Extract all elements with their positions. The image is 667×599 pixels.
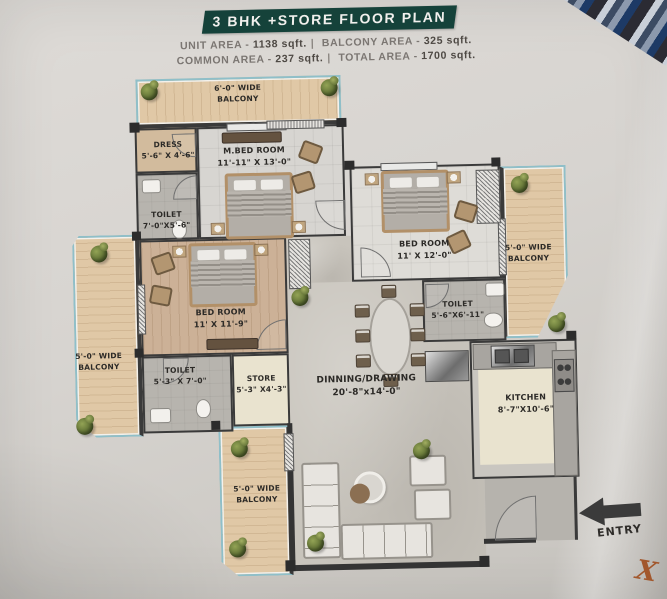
sink-bowl	[495, 349, 510, 363]
dining-chair	[355, 304, 370, 317]
kitchen-sink-unit	[491, 345, 535, 368]
label-balcony-top: 6'-0" WIDEBALCONY	[193, 82, 283, 106]
label-balcony-right: 5'-0" WIDEBALCONY	[488, 242, 568, 266]
pillow	[223, 248, 247, 261]
sofa-single	[414, 489, 452, 521]
sliding-door	[283, 433, 294, 471]
floor-plan: 6'-0" WIDEBALCONY DRESS5'-6" X 4'-6" M.B…	[60, 66, 623, 580]
dining-chair	[411, 353, 426, 366]
bedside-lamp	[172, 246, 186, 258]
washbasin	[485, 282, 504, 296]
wall-pillar	[285, 560, 295, 571]
wall-pillar	[344, 161, 354, 170]
dining-chair	[355, 329, 370, 342]
wall-pillar	[336, 118, 346, 127]
wall-pillar	[135, 349, 144, 358]
total-area-value: 1700 sqft.	[421, 49, 476, 62]
wall-pillar	[566, 331, 576, 340]
bedside-lamp	[365, 173, 379, 185]
arrow-bar	[601, 502, 641, 518]
label-bedroom-right: BED ROOM11' X 12'-0"	[374, 237, 475, 262]
washbasin	[150, 408, 171, 423]
blanket	[227, 190, 292, 217]
arrow-head	[578, 498, 605, 528]
pillow	[233, 179, 257, 192]
label-dining: DINNING/DRAWING20'-8"x14'-0"	[305, 372, 428, 401]
balcony-area-label: BALCONY AREA -	[318, 35, 424, 49]
wall-pillar	[129, 123, 139, 133]
pillow	[389, 176, 413, 189]
title-banner: 3 BHK +STORE FLOOR PLAN	[202, 5, 457, 33]
label-toilet-right: TOILET5'-6"X6'-11"	[418, 298, 498, 322]
wall-pillar	[479, 556, 489, 567]
page-title: 3 BHK +STORE FLOOR PLAN	[203, 5, 456, 33]
label-master-bedroom: M.BED ROOM11'-11" X 13'-0"	[204, 144, 305, 169]
kitchen-floor	[478, 368, 554, 465]
room-balcony-left	[72, 235, 144, 438]
label-store: STORE5'-3" X4'-3"	[221, 373, 301, 397]
dining-chair	[356, 354, 371, 367]
balcony-area-value: 325 sqft.	[424, 34, 472, 47]
dresser	[222, 131, 282, 143]
unit-area-label: UNIT AREA -	[180, 39, 253, 53]
sliding-door	[266, 119, 324, 129]
bed-right	[381, 170, 450, 234]
sink-bowl	[514, 349, 529, 363]
pillow	[416, 176, 440, 189]
unit-area-value: 1138 sqft.	[253, 38, 307, 51]
bedside-lamp	[211, 223, 225, 235]
label-balcony-bottom: 5'-0" WIDEBALCONY	[217, 483, 297, 507]
wardrobe	[476, 169, 501, 224]
separator: |	[307, 37, 319, 49]
bedside-lamp	[292, 221, 306, 233]
blanket	[191, 260, 256, 287]
common-area-label: COMMON AREA -	[177, 53, 276, 67]
common-area-value: 237 sqft.	[275, 52, 323, 65]
armchair	[149, 284, 173, 307]
toilet-seat	[196, 399, 211, 418]
label-dress: DRESS5'-6" X 4'-6"	[138, 139, 198, 162]
wall-pillar	[132, 232, 141, 241]
pillow	[260, 178, 284, 191]
master-bed	[225, 172, 294, 240]
plant-icon	[548, 315, 565, 332]
bedside-lamp	[447, 171, 461, 183]
refrigerator	[425, 350, 470, 382]
sliding-door	[137, 284, 146, 334]
dining-chair	[381, 285, 396, 298]
label-kitchen: KITCHEN8'-7"X10'-6"	[476, 391, 577, 416]
stove-burners	[554, 359, 575, 392]
wardrobe	[288, 239, 311, 289]
photo-background: 3 BHK +STORE FLOOR PLAN UNIT AREA - 1138…	[0, 0, 667, 599]
label-toilet-left: TOILET5'-3" X 7'-0"	[140, 365, 220, 389]
pillow	[196, 249, 220, 262]
dresser	[206, 338, 258, 350]
sofa-single	[409, 455, 447, 487]
wall-pillar	[211, 421, 220, 430]
bed-left	[188, 242, 257, 308]
label-bedroom-left: BED ROOM11' X 11'-9"	[171, 306, 272, 331]
wall-pillar	[491, 157, 500, 166]
label-balcony-left: 5'-0" WIDEBALCONY	[63, 351, 135, 374]
total-area-label: TOTAL AREA -	[335, 50, 422, 64]
label-toilet-master: TOILET7'-0"X5'-6"	[126, 209, 206, 233]
blanket	[383, 188, 448, 215]
washbasin	[142, 179, 161, 193]
sofa-bottom	[341, 522, 434, 560]
bedside-lamp	[254, 244, 268, 256]
dining-chair	[410, 328, 425, 341]
separator: |	[323, 52, 335, 64]
